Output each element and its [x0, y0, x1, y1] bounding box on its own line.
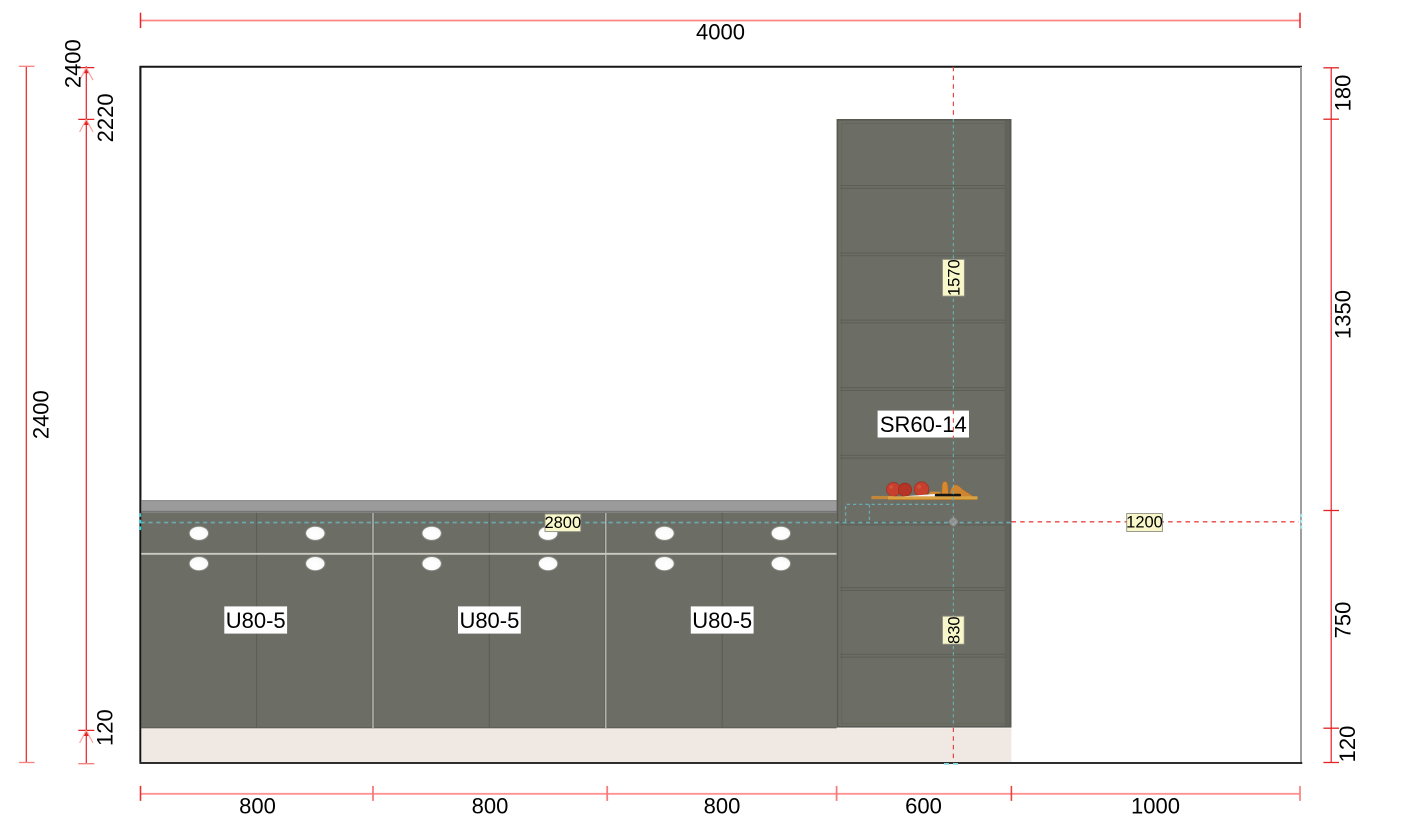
svg-text:120: 120	[93, 709, 118, 746]
svg-text:U80-5: U80-5	[226, 608, 286, 633]
svg-text:2400: 2400	[29, 390, 54, 439]
svg-text:1200: 1200	[1126, 513, 1163, 531]
svg-text:800: 800	[239, 794, 276, 819]
svg-text:2220: 2220	[93, 93, 118, 142]
svg-text:2800: 2800	[544, 514, 581, 532]
svg-text:800: 800	[704, 794, 741, 819]
svg-text:120: 120	[1335, 726, 1360, 763]
svg-text:SR60-14: SR60-14	[880, 412, 967, 437]
svg-text:180: 180	[1331, 75, 1356, 112]
svg-text:1350: 1350	[1331, 290, 1356, 339]
svg-text:600: 600	[905, 794, 942, 819]
svg-text:U80-5: U80-5	[692, 608, 752, 633]
svg-text:830: 830	[946, 616, 964, 644]
svg-text:U80-5: U80-5	[459, 608, 519, 633]
svg-text:2400: 2400	[61, 39, 86, 88]
svg-text:1570: 1570	[946, 259, 964, 296]
svg-text:800: 800	[472, 794, 509, 819]
svg-text:4000: 4000	[696, 20, 745, 45]
svg-text:750: 750	[1331, 602, 1356, 639]
svg-text:1000: 1000	[1131, 794, 1180, 819]
